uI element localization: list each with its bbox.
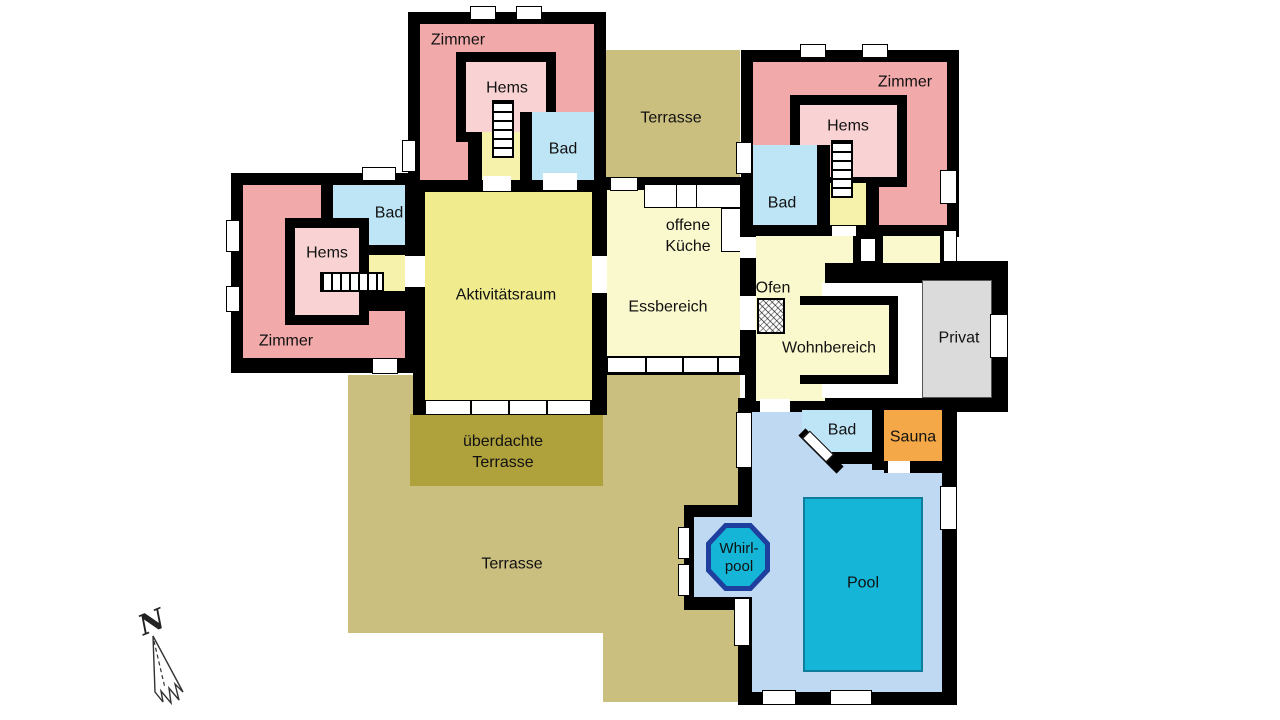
kitchen-counter bbox=[721, 208, 741, 252]
door-divider bbox=[645, 357, 647, 373]
label-line: offene bbox=[666, 217, 710, 234]
window bbox=[800, 44, 826, 58]
room-label-zimmer-mid-left: Zimmer bbox=[259, 331, 313, 352]
room-label-bad-pool: Bad bbox=[828, 420, 856, 441]
label-line: pool bbox=[725, 558, 753, 575]
window bbox=[402, 140, 416, 172]
room-label-bad-top-right: Bad bbox=[768, 193, 796, 214]
door-opening bbox=[543, 173, 577, 190]
room-label-hems-mid-left: Hems bbox=[306, 243, 348, 264]
door-opening bbox=[405, 256, 425, 287]
door-opening bbox=[740, 296, 756, 330]
door-opening bbox=[832, 226, 856, 236]
door-opening bbox=[888, 461, 910, 473]
room-label-whirlpool: Whirl- pool bbox=[719, 540, 758, 576]
compass-n-label: N bbox=[133, 601, 171, 642]
window bbox=[736, 142, 752, 174]
room-label-hems-top-left: Hems bbox=[486, 78, 528, 99]
door-opening bbox=[830, 690, 872, 705]
window bbox=[470, 6, 496, 20]
stairs-icon bbox=[831, 140, 853, 198]
room-label-terrasse-top: Terrasse bbox=[640, 108, 701, 129]
sliding-door bbox=[607, 357, 740, 373]
door-divider bbox=[682, 357, 684, 373]
label-line: überdachte bbox=[463, 433, 543, 450]
corridor bbox=[756, 236, 940, 263]
window bbox=[610, 177, 638, 191]
inner-wall bbox=[520, 112, 532, 180]
inner-wall bbox=[468, 132, 482, 180]
counter-divider bbox=[696, 185, 697, 207]
window bbox=[226, 286, 240, 312]
window bbox=[734, 598, 750, 646]
room-label-wohnbereich: Wohnbereich bbox=[782, 338, 876, 359]
room-label-essbereich: Essbereich bbox=[628, 297, 707, 318]
window bbox=[516, 6, 542, 20]
north-arrow-body bbox=[153, 636, 183, 703]
window bbox=[943, 230, 957, 262]
room-label-bad-mid-left: Bad bbox=[375, 203, 403, 224]
door-opening bbox=[760, 399, 790, 412]
window bbox=[940, 486, 957, 530]
door-opening bbox=[592, 256, 608, 293]
stairs-icon bbox=[320, 272, 384, 292]
floor-plan-canvas: Zimmer Hems Bad Terrasse Zimmer Hems Bad… bbox=[0, 0, 1280, 720]
north-arrow-icon: N bbox=[122, 600, 208, 715]
window bbox=[860, 238, 876, 262]
door-divider bbox=[470, 400, 472, 415]
room-label-ueberdachte-terrasse: überdachte Terrasse bbox=[463, 431, 543, 473]
room-label-offene-kueche: offene Küche bbox=[665, 215, 710, 257]
window bbox=[678, 527, 690, 559]
window bbox=[226, 220, 240, 252]
door-divider bbox=[717, 357, 719, 373]
door-opening bbox=[740, 237, 756, 258]
window bbox=[678, 564, 690, 596]
room-label-privat: Privat bbox=[939, 328, 980, 349]
kitchen-counter bbox=[644, 184, 741, 208]
counter-divider bbox=[676, 185, 677, 207]
window bbox=[736, 412, 752, 468]
door-opening bbox=[483, 176, 511, 191]
room-label-terrasse-bottom: Terrasse bbox=[481, 554, 542, 575]
room-label-sauna: Sauna bbox=[890, 427, 936, 448]
door-opening bbox=[762, 690, 796, 705]
room-label-bad-top-left: Bad bbox=[549, 139, 577, 160]
room-label-zimmer-top-right: Zimmer bbox=[878, 72, 932, 93]
room-label-ofen: Ofen bbox=[756, 278, 791, 299]
oven-icon bbox=[757, 298, 785, 334]
label-line: Whirl- bbox=[719, 540, 758, 557]
inner-wall bbox=[817, 145, 830, 225]
window bbox=[362, 167, 396, 181]
label-line: Küche bbox=[665, 238, 710, 255]
window bbox=[372, 358, 398, 374]
window bbox=[862, 44, 888, 58]
inner-wall bbox=[367, 291, 405, 311]
room-label-zimmer-top-left: Zimmer bbox=[431, 30, 485, 51]
room-label-pool: Pool bbox=[847, 573, 879, 594]
door-divider bbox=[546, 400, 548, 415]
room-label-hems-top-right: Hems bbox=[827, 116, 869, 137]
room-label-aktivitaetsraum: Aktivitätsraum bbox=[456, 285, 556, 306]
window bbox=[940, 170, 957, 204]
label-line: Terrasse bbox=[472, 454, 533, 471]
window bbox=[990, 314, 1008, 358]
inner-wall bbox=[866, 183, 879, 227]
door-divider bbox=[508, 400, 510, 415]
stairs-icon bbox=[492, 100, 514, 158]
